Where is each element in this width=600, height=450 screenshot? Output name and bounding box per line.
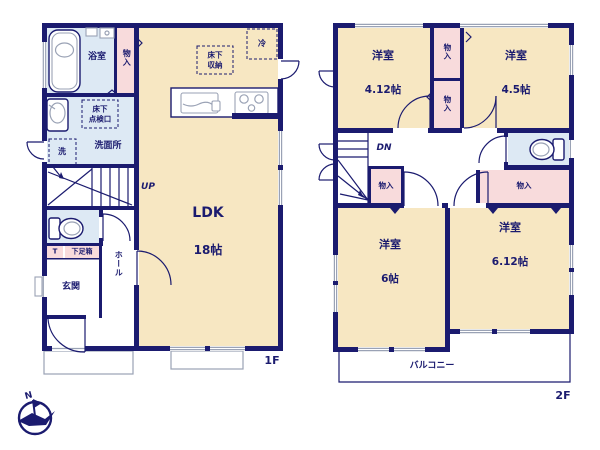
bath-vanity-icon xyxy=(86,28,114,38)
room-sw-label: 洋室 6帖 xyxy=(379,217,401,307)
window xyxy=(569,45,574,75)
window xyxy=(42,42,47,88)
wall xyxy=(504,165,574,170)
shoe-t-label: T xyxy=(53,247,58,256)
wall xyxy=(476,170,480,203)
floor2-label: 2F xyxy=(555,389,570,403)
wall xyxy=(434,78,460,81)
room-nw-size: 4.12帖 xyxy=(365,84,401,98)
room-sw-size: 6帖 xyxy=(379,273,401,287)
wall xyxy=(134,23,139,351)
bathtub-icon xyxy=(49,30,80,92)
door-opening xyxy=(462,128,497,133)
closet-lower-label: 物入 xyxy=(442,96,452,113)
ldk-label: LDK 18帖 xyxy=(192,183,223,279)
wall xyxy=(42,315,86,319)
wall xyxy=(42,164,139,168)
wall xyxy=(47,258,99,260)
closet-hall-label: 物入 xyxy=(379,181,394,191)
room-se-label: 洋室 6.12帖 xyxy=(492,200,528,290)
bathroom-label: 浴室 xyxy=(88,52,106,64)
floor-plan: 浴室 物入 床下 点検口 洗 洗面所 UP 冷 床下 収納 LDK 18帖 T … xyxy=(0,0,600,450)
floor1-label: 1F xyxy=(264,354,279,368)
closet-1f-label: 物入 xyxy=(121,49,131,67)
floor1-plan xyxy=(27,23,299,374)
terrace-step xyxy=(171,351,243,369)
door-opening xyxy=(278,59,283,79)
wall xyxy=(99,246,102,318)
fridge-label: 冷 xyxy=(258,39,266,49)
ldk-size: 18帖 xyxy=(192,243,223,259)
underfloor-hatch-label: 床下 点検口 xyxy=(89,104,112,124)
window xyxy=(333,255,338,312)
room-ne-label: 洋室 4.5帖 xyxy=(501,28,530,118)
wall xyxy=(333,128,574,133)
stairs-down-label: DN xyxy=(376,143,391,155)
window xyxy=(460,329,530,334)
room-se-name: 洋室 xyxy=(492,221,528,235)
underfloor-storage-label: 床下 収納 xyxy=(208,50,223,70)
room-nw-label: 洋室 4.12帖 xyxy=(365,28,401,118)
room-ne-size: 4.5帖 xyxy=(501,84,530,98)
hall-label: ホール xyxy=(113,251,123,278)
entrance-label: 玄関 xyxy=(62,282,80,294)
wall xyxy=(42,206,139,210)
stairs-up-label: UP xyxy=(141,182,155,194)
balcony-label: バルコニー xyxy=(410,361,455,373)
room-ne-name: 洋室 xyxy=(501,49,530,63)
toilet-icon-1f xyxy=(49,218,83,239)
kitchen-counter xyxy=(171,88,283,119)
window xyxy=(170,346,245,351)
closet-upper-label: 物入 xyxy=(442,44,452,61)
window xyxy=(358,347,425,352)
room-se-size: 6.12帖 xyxy=(492,256,528,270)
toilet-icon-2f xyxy=(530,139,564,160)
wall xyxy=(42,23,283,28)
porch xyxy=(44,351,133,374)
wall xyxy=(445,208,450,352)
washroom-label: 洗面所 xyxy=(94,141,121,153)
ldk-name: LDK xyxy=(192,204,223,222)
wall xyxy=(42,243,103,246)
wall xyxy=(42,93,139,97)
washer-label: 洗 xyxy=(58,147,66,157)
faucet-icon xyxy=(212,101,220,111)
window xyxy=(35,276,47,297)
window xyxy=(569,245,574,295)
window xyxy=(278,131,283,205)
room-sw-name: 洋室 xyxy=(379,238,401,252)
shoe-box-label: 下足箱 xyxy=(72,247,93,256)
door-opening xyxy=(393,128,428,133)
floor2-plan xyxy=(319,23,574,382)
room-nw-name: 洋室 xyxy=(365,49,401,63)
washroom-sink-icon xyxy=(47,99,68,131)
wall xyxy=(368,166,404,169)
wall xyxy=(460,23,464,133)
casement-window-icon xyxy=(319,71,335,180)
compass-north-icon xyxy=(18,399,55,434)
stove-icon xyxy=(235,92,268,114)
closet-wide-label: 物入 xyxy=(517,181,532,191)
window xyxy=(569,140,574,158)
door-opening xyxy=(404,203,442,208)
